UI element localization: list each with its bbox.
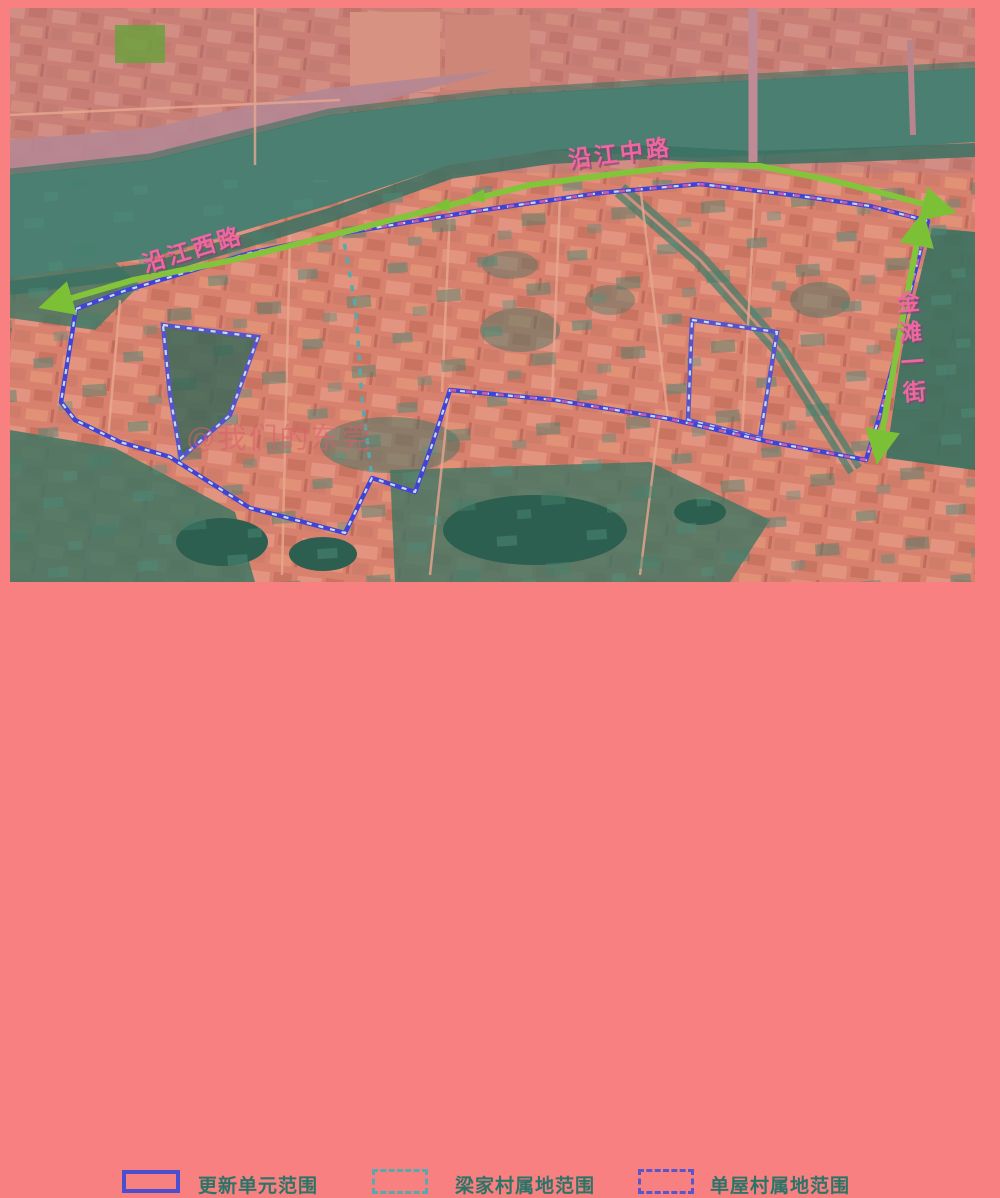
legend-swatch-liangjia-village (372, 1169, 428, 1194)
legend-swatch-renewal-unit (122, 1170, 180, 1193)
legend-swatch-danwu-village (638, 1169, 694, 1194)
legend-label-danwu-village: 单屋村属地范围 (710, 1171, 850, 1198)
roof-texture (10, 180, 975, 582)
satellite-canvas: 沿江西路 沿江西路 沿江中路 沿江中路 金滩一街 金滩一街 @我们的东莞 (10, 8, 975, 582)
bridge-2 (910, 40, 913, 135)
watermark-text: @我们的东莞 (186, 422, 372, 455)
legend-label-liangjia-village: 梁家村属地范围 (455, 1171, 595, 1198)
legend: 更新单元范围 梁家村属地范围 单屋村属地范围 (0, 582, 1000, 619)
legend-label-renewal-unit: 更新单元范围 (198, 1171, 318, 1198)
satellite-map: 沿江西路 沿江西路 沿江中路 沿江中路 金滩一街 金滩一街 @我们的东莞 (10, 8, 975, 582)
map-frame: 沿江西路 沿江西路 沿江中路 沿江中路 金滩一街 金滩一街 @我们的东莞 更新单… (0, 0, 1000, 619)
